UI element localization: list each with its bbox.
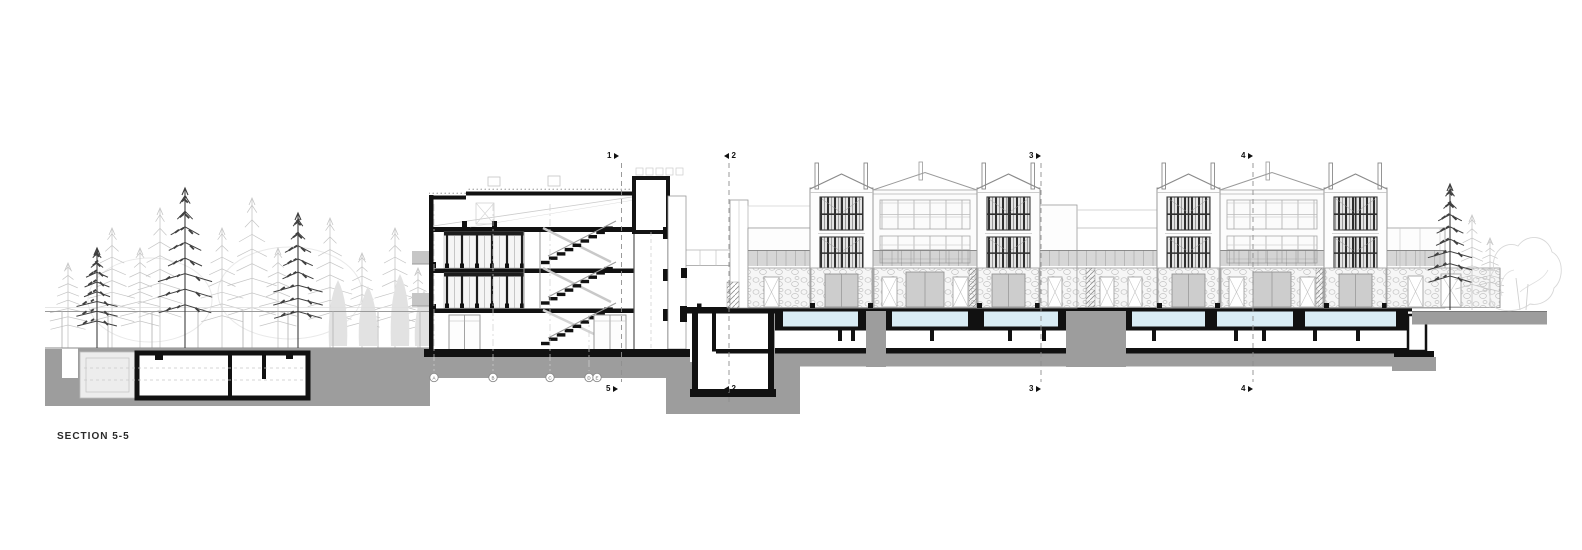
- section-marker-label: 4: [1241, 152, 1245, 160]
- svg-text:B: B: [491, 375, 494, 380]
- architectural-section-canvas: ABCDE SECTION 5-5 12345234: [0, 0, 1582, 550]
- section-arrow-left-icon: [724, 153, 729, 159]
- left-basement: [80, 352, 308, 398]
- section-arrow-right-icon: [1248, 153, 1253, 159]
- pool-basement-strip: [686, 304, 1547, 372]
- section-marker-4: 4: [1241, 152, 1253, 160]
- section-marker-label: 4: [1241, 385, 1245, 393]
- section-marker-4: 4: [1241, 385, 1253, 393]
- section-marker-1: 1: [607, 152, 619, 160]
- section-marker-label: 2: [732, 385, 736, 393]
- section-marker-5: 5: [606, 385, 618, 393]
- section-marker-2: 2: [724, 385, 736, 393]
- section-arrow-right-icon: [613, 386, 618, 392]
- section-marker-label: 1: [607, 152, 611, 160]
- central-building-section: [412, 168, 690, 357]
- section-marker-label: 5: [606, 385, 610, 393]
- section-drawing: ABCDE: [0, 0, 1582, 550]
- svg-text:E: E: [595, 375, 598, 380]
- section-arrow-right-icon: [1248, 386, 1253, 392]
- section-marker-3: 3: [1029, 152, 1041, 160]
- section-marker-2: 2: [724, 152, 736, 160]
- section-marker-3: 3: [1029, 385, 1041, 393]
- section-arrow-right-icon: [1036, 386, 1041, 392]
- section-arrow-right-icon: [1036, 153, 1041, 159]
- svg-text:A: A: [432, 375, 435, 380]
- section-arrow-right-icon: [614, 153, 619, 159]
- section-marker-label: 3: [1029, 385, 1033, 393]
- section-marker-label: 2: [732, 152, 736, 160]
- section-arrow-left-icon: [724, 386, 729, 392]
- section-marker-label: 3: [1029, 152, 1033, 160]
- drawing-title: SECTION 5-5: [57, 431, 130, 442]
- townhouse-elevation: [727, 162, 1500, 308]
